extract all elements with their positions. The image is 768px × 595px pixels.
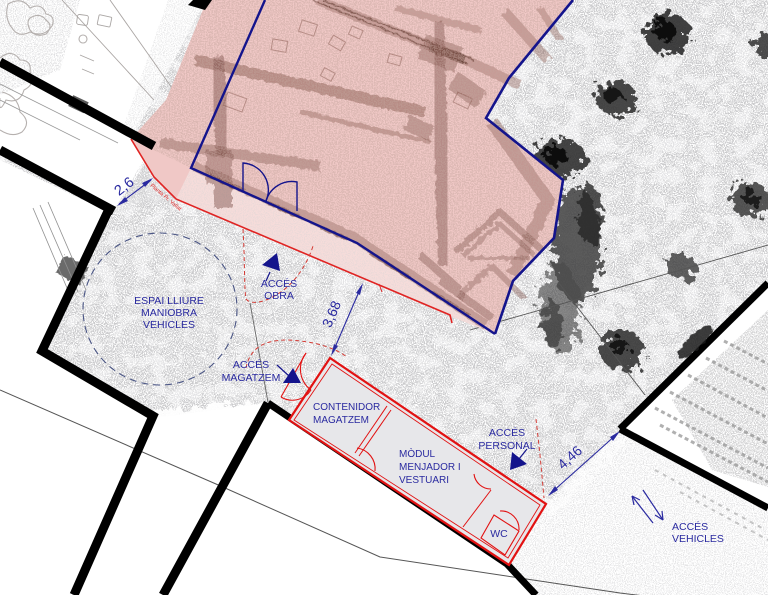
svg-text:MENJADOR I: MENJADOR I (399, 462, 461, 473)
svg-text:ACCÉS: ACCÉS (672, 520, 708, 533)
svg-text:OBRA: OBRA (264, 290, 294, 302)
svg-text:MAGATZEM: MAGATZEM (222, 372, 281, 384)
svg-text:WC: WC (490, 528, 508, 540)
svg-text:MAGATZEM: MAGATZEM (313, 415, 369, 426)
svg-text:PERSONAL: PERSONAL (478, 440, 535, 452)
svg-text:MANIOBRA: MANIOBRA (141, 307, 197, 319)
svg-text:VESTUARI: VESTUARI (399, 475, 449, 486)
svg-text:VEHICLES: VEHICLES (672, 533, 724, 545)
svg-text:ESPAI LLIURE: ESPAI LLIURE (134, 295, 204, 307)
svg-text:CONTENIDOR: CONTENIDOR (313, 402, 380, 413)
svg-text:ACCÉS: ACCÉS (489, 426, 525, 439)
svg-text:VEHICLES: VEHICLES (143, 319, 195, 331)
svg-text:MÒDUL: MÒDUL (399, 447, 436, 460)
svg-text:ACCÉS: ACCÉS (233, 358, 269, 371)
